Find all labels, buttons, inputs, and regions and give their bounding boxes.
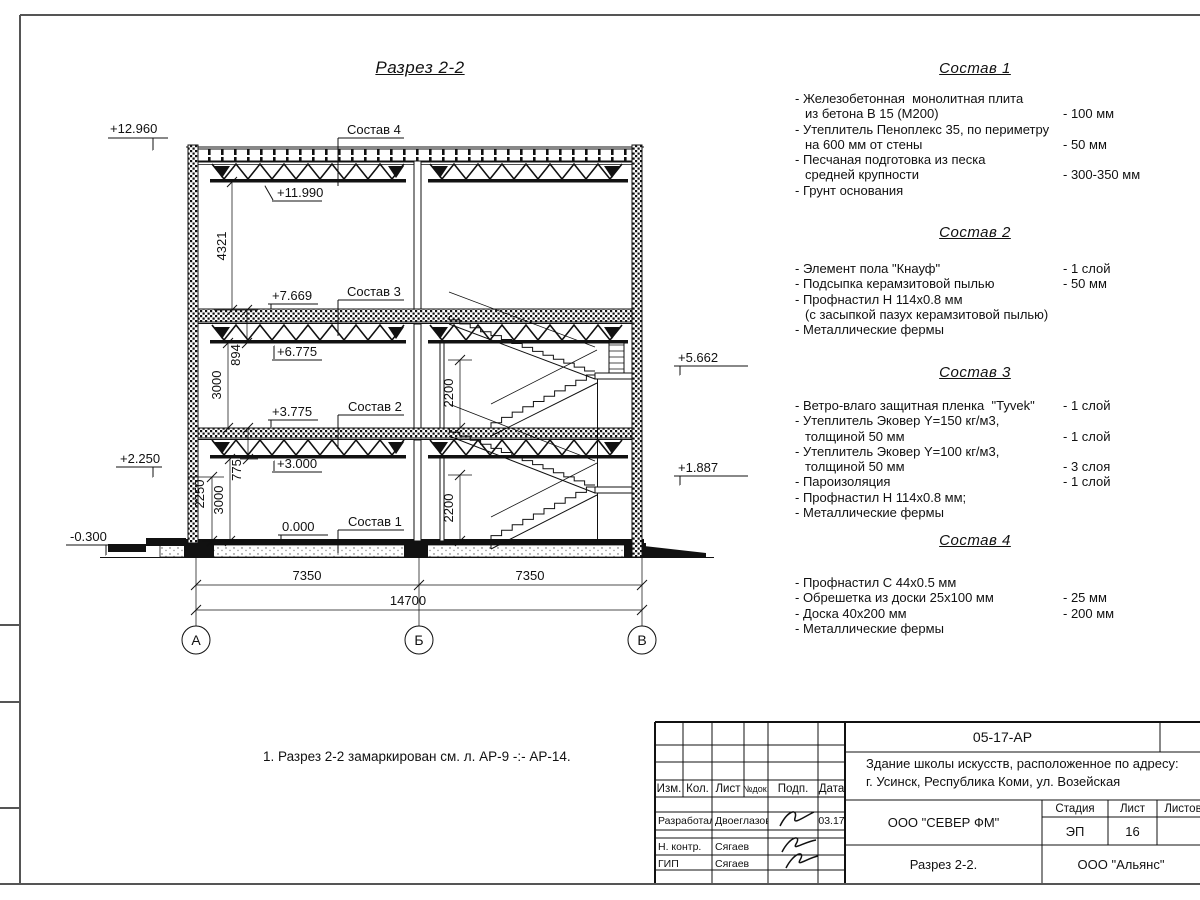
elevation-12960: +12.960 xyxy=(108,121,168,150)
signature-gip xyxy=(786,854,818,868)
list-item: - Грунт основания xyxy=(795,183,1192,198)
list-item: средней крупности- 300-350 мм xyxy=(795,167,1192,182)
list-item: - Железобетонная монолитная плита xyxy=(795,91,1192,106)
role-developer: Разработал xyxy=(658,813,712,828)
list-item: - Металлические фермы xyxy=(795,505,1192,520)
composition-1: Состав 1 - Железобетонная монолитная пли… xyxy=(792,60,1192,77)
svg-text:+3.775: +3.775 xyxy=(272,404,312,419)
svg-text:+11.990: +11.990 xyxy=(277,185,323,200)
note-text: 1. Разрез 2-2 замаркирован см. л. АР-9 -… xyxy=(263,749,571,764)
list-item: - Элемент пола "Кнауф"- 1 слой xyxy=(795,261,1192,276)
composition-2: Состав 2 - Элемент пола "Кнауф"- 1 слой … xyxy=(792,224,1192,241)
vertical-dimensions: 4321 894 3000 775 3000 2250 2200 2200 xyxy=(188,177,472,546)
col-list: Лист xyxy=(712,780,744,797)
list-item: (с засыпкой пазух керамзитовой пылью) xyxy=(795,307,1192,322)
dim-7350-left: 7350 xyxy=(293,568,322,583)
svg-text:+5.662: +5.662 xyxy=(678,350,718,365)
list-item: на 600 мм от стены- 50 мм xyxy=(795,137,1192,152)
project-name-line2: г. Усинск, Республика Коми, ул. Возейска… xyxy=(866,773,1196,789)
sheet-number: 16 xyxy=(1108,817,1157,845)
name-developer: Двоеглазов xyxy=(715,813,768,828)
elevation-6775: +6.775 xyxy=(272,344,322,360)
project-name-line1: Здание школы искусств, расположенное по … xyxy=(866,755,1196,771)
composition-4: Состав 4 - Профнастил С 44х0.5 мм - Обре… xyxy=(792,532,1192,549)
composition-1-title: Состав 1 xyxy=(792,60,1158,77)
composition-3: Состав 3 - Ветро-влаго защитная пленка "… xyxy=(792,364,1192,381)
list-item: - Металлические фермы xyxy=(795,621,1192,636)
list-item: - Утеплитель Эковер Y=100 кг/м3, xyxy=(795,444,1192,459)
svg-text:+2.250: +2.250 xyxy=(120,451,160,466)
elevation-minus0300: -0.300 xyxy=(66,529,112,555)
elevation-3000: +3.000 xyxy=(272,456,322,472)
svg-text:Состав 4: Состав 4 xyxy=(347,122,401,137)
axis-label-b: Б xyxy=(414,632,423,648)
col-ndoc: №док. xyxy=(744,780,768,797)
name-gip: Сягаев xyxy=(715,856,768,871)
svg-text:+6.775: +6.775 xyxy=(277,344,317,359)
svg-text:+3.000: +3.000 xyxy=(277,456,317,471)
list-item: толщиной 50 мм- 3 слоя xyxy=(795,459,1192,474)
list-item: - Обрешетка из доски 25х100 мм- 25 мм xyxy=(795,590,1192,605)
list-item: - Профнастил С 44х0.5 мм xyxy=(795,575,1192,590)
list-item: - Ветро-влаго защитная пленка "Tyvek"- 1… xyxy=(795,398,1192,413)
list-item: из бетона В 15 (М200)- 100 мм xyxy=(795,106,1192,121)
list-item: - Пароизоляция- 1 слой xyxy=(795,474,1192,489)
list-item: - Доска 40х200 мм- 200 мм xyxy=(795,606,1192,621)
elevation-0000: 0.000 xyxy=(278,519,328,540)
sheet-label: Лист xyxy=(1108,800,1157,817)
list-item: - Подсыпка керамзитовой пылью- 50 мм xyxy=(795,276,1192,291)
col-data: Дата xyxy=(818,780,845,797)
list-item: толщиной 50 мм- 1 слой xyxy=(795,429,1192,444)
svg-text:-0.300: -0.300 xyxy=(70,529,107,544)
drawing-sheet: 4321 894 3000 775 3000 2250 2200 2200 xyxy=(0,0,1200,900)
svg-text:+7.669: +7.669 xyxy=(272,288,312,303)
ladder xyxy=(609,341,624,373)
role-gip: ГИП xyxy=(658,856,712,871)
composition-4-title: Состав 4 xyxy=(792,532,1158,549)
sheets-label: Листов xyxy=(1157,800,1200,817)
date-developer: 03.17 xyxy=(818,814,845,828)
axis-label-v: В xyxy=(637,632,646,648)
list-item: - Профнастил Н 114х0.8 мм xyxy=(795,292,1192,307)
dim-2200-upper: 2200 xyxy=(441,379,456,408)
list-item: - Профнастил Н 114х0.8 мм; xyxy=(795,490,1192,505)
role-ncontr: Н. контр. xyxy=(658,839,712,854)
wall-axis-v xyxy=(632,145,642,557)
horizontal-dimensions: 7350 7350 14700 А Б В xyxy=(182,558,656,654)
list-item: - Песчаная подготовка из песка xyxy=(795,152,1192,167)
contractor: ООО "Альянс" xyxy=(1042,845,1200,883)
doc-number: 05-17-АР xyxy=(845,724,1160,750)
elevation-5662: +5.662 xyxy=(674,350,748,375)
elevation-11990: +11.990 xyxy=(265,185,323,201)
svg-text:Состав 3: Состав 3 xyxy=(347,284,401,299)
dim-775: 775 xyxy=(229,459,244,481)
col-podp: Подп. xyxy=(768,780,818,797)
design-org: ООО "СЕВЕР ФМ" xyxy=(845,800,1042,845)
drawing-view-title: Разрез 2-2 xyxy=(330,58,510,78)
svg-text:+12.960: +12.960 xyxy=(110,121,157,136)
list-item: - Утеплитель Эковер Y=150 кг/м3, xyxy=(795,413,1192,428)
column-b xyxy=(414,161,421,541)
dim-7350-right: 7350 xyxy=(516,568,545,583)
leader-sostav2: Состав 2 xyxy=(338,399,404,449)
svg-text:+1.887: +1.887 xyxy=(678,460,718,475)
composition-3-title: Состав 3 xyxy=(792,364,1158,381)
stage-value: ЭП xyxy=(1042,817,1108,845)
dim-2200-lower: 2200 xyxy=(441,494,456,523)
list-item: - Утеплитель Пеноплекс 35, по периметру xyxy=(795,122,1192,137)
svg-text:0.000: 0.000 xyxy=(282,519,315,534)
dim-4321: 4321 xyxy=(214,232,229,261)
stage-label: Стадия xyxy=(1042,800,1108,817)
signature-ncontr xyxy=(782,838,816,852)
dim-894: 894 xyxy=(228,344,243,366)
col-kol: Кол. xyxy=(683,780,712,797)
sheet-title: Разрез 2-2. xyxy=(845,845,1042,883)
axis-label-a: А xyxy=(191,632,201,648)
dim-14700: 14700 xyxy=(390,593,426,608)
composition-2-title: Состав 2 xyxy=(792,224,1158,241)
elevation-2250: +2.250 xyxy=(116,451,162,477)
dim-3000-lower: 3000 xyxy=(211,486,226,515)
svg-text:Состав 1: Состав 1 xyxy=(348,514,402,529)
list-item: - Металлические фермы xyxy=(795,322,1192,337)
col-izm: Изм. xyxy=(655,780,683,797)
signature-developer xyxy=(780,812,814,826)
elevation-7669: +7.669 xyxy=(268,288,318,309)
elevation-marks: +12.960 +11.990 +7.669 +6.775 +3.775 +3.… xyxy=(66,121,748,555)
dim-2250: 2250 xyxy=(192,480,207,509)
name-ncontr: Сягаев xyxy=(715,839,768,854)
elevation-1887: +1.887 xyxy=(674,460,748,485)
elevation-3775: +3.775 xyxy=(268,404,318,427)
svg-text:Состав 2: Состав 2 xyxy=(348,399,402,414)
dim-3000-upper: 3000 xyxy=(209,371,224,400)
